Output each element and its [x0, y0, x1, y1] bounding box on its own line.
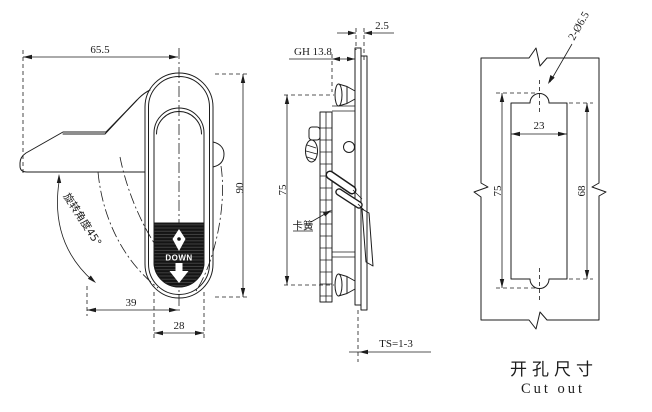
dim-overall-width-label: 65.5	[90, 44, 110, 56]
rotation-arc: 旋转角度45°	[57, 174, 105, 283]
diamond-dot	[177, 237, 181, 241]
side-view: 2.5 GH 13.8 7	[277, 20, 431, 362]
dimension-height: 90	[215, 74, 250, 297]
open-handle-outline	[20, 90, 150, 172]
cutout-caption-cn: 开孔尺寸	[510, 360, 598, 380]
rotation-note-label: 旋转角度45°	[60, 191, 104, 249]
dim-cutout-overall-height-label: 75	[492, 185, 504, 197]
top-stud	[335, 84, 355, 106]
dim-cutout-width-label: 23	[534, 120, 546, 132]
dim-mount-span-label: 75	[277, 184, 289, 196]
bottom-stud	[335, 274, 355, 296]
dimension-flange: 2.5	[337, 20, 394, 60]
dimension-overall-width: 65.5	[23, 44, 178, 176]
side-nub	[213, 142, 224, 167]
dim-flange-label: 2.5	[375, 20, 389, 32]
dim-thickness-label: TS=1-3	[379, 338, 413, 350]
dimension-grip-height: GH 13.8	[289, 46, 355, 92]
grip-down-label: DOWN	[165, 254, 192, 263]
dim-offset-label: 39	[126, 297, 138, 309]
dim-body-width-label: 28	[174, 320, 186, 332]
body-clip-tab	[309, 127, 320, 140]
dimension-cutout-overall-height: 75	[492, 93, 504, 288]
dim-cutout-rect-height-label: 68	[576, 185, 588, 197]
dim-height-label: 90	[234, 182, 246, 194]
lock-body	[306, 106, 356, 302]
thickness-callout: TS=1-3	[349, 310, 431, 362]
dimension-cutout-width: 23	[511, 120, 567, 136]
technical-drawing: 65.5 旋转角度45°	[0, 0, 652, 412]
dim-holes-label: 2-Ø6.5	[566, 9, 592, 42]
cutout-view: 2-Ø6.5 23 75 68 开孔尺寸 Cut out	[474, 9, 606, 397]
cutout-caption-en: Cut out	[521, 381, 585, 397]
dim-grip-height-label: GH 13.8	[294, 46, 332, 58]
front-view: 65.5 旋转角度45°	[20, 44, 250, 338]
drawing-canvas: 65.5 旋转角度45°	[0, 0, 652, 412]
dimension-cutout-rect-height: 68	[576, 103, 589, 279]
grip-area: DOWN	[154, 223, 204, 287]
body-hole	[344, 142, 355, 153]
mount-plate	[355, 48, 367, 310]
clip-label: 卡簧	[293, 219, 314, 232]
dimension-mount-span: 75	[277, 95, 289, 285]
holes-callout: 2-Ø6.5	[548, 9, 592, 84]
